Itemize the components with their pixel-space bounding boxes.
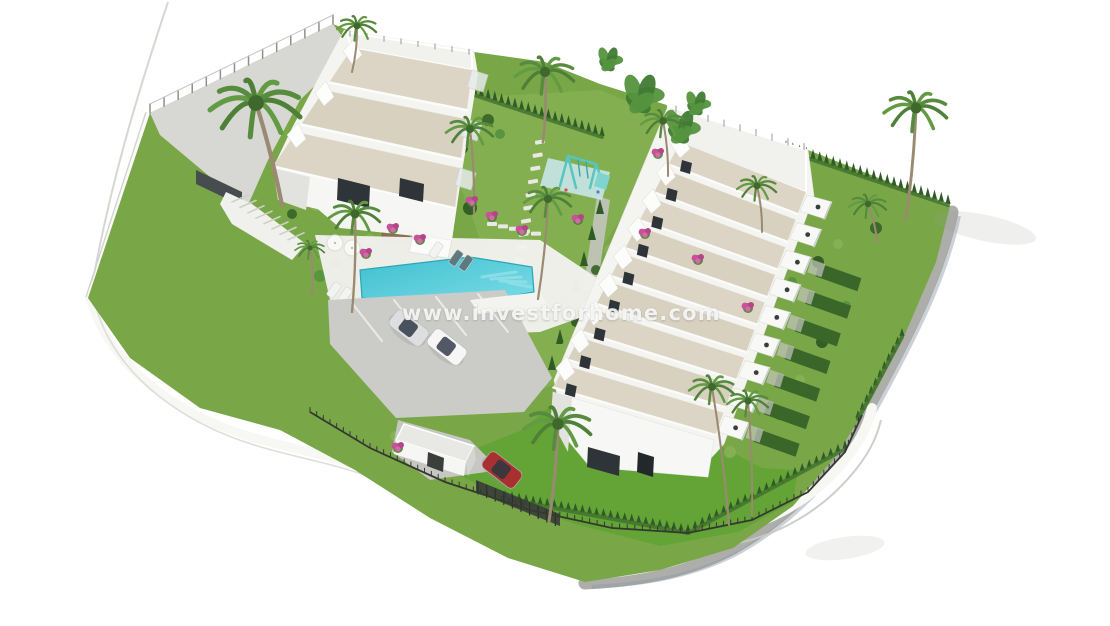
palm-crown (659, 117, 666, 124)
stepping-stone (498, 224, 508, 228)
pool-steps (491, 277, 521, 279)
toy (596, 190, 599, 193)
palm-crown (466, 125, 474, 133)
site-render (0, 0, 1110, 626)
flowers (417, 238, 422, 243)
stepping-stone (487, 222, 497, 226)
parasol-pole (334, 242, 336, 244)
terrace-furniture (795, 260, 800, 265)
terrace-furniture (733, 425, 738, 430)
terrace-furniture (764, 343, 769, 348)
garden-bush (833, 239, 843, 249)
garden-bush (724, 446, 736, 458)
palm-crown (911, 103, 922, 114)
leafy-tree (596, 46, 623, 74)
palm-shadow (804, 532, 886, 565)
palm-crown (754, 183, 761, 190)
palm-crown (552, 418, 564, 430)
stepping-stone (531, 232, 541, 236)
garden-bush (287, 209, 297, 219)
flowers (575, 218, 580, 223)
flowers (469, 200, 474, 205)
toy (564, 188, 567, 191)
terrace-furniture (785, 287, 790, 292)
palm-crown (354, 23, 361, 30)
palm-crown (248, 95, 264, 111)
pool-steps (500, 281, 526, 282)
flowers (395, 446, 400, 451)
palm-crown (544, 195, 552, 203)
palm-crown (744, 397, 751, 404)
palm-crown (351, 210, 360, 219)
terrace-furniture (774, 315, 779, 320)
flowers (489, 215, 494, 220)
terrace-furniture (816, 205, 821, 210)
flowers (745, 306, 750, 311)
render-canvas: www.investforhome.com (0, 0, 1110, 626)
flowers (655, 152, 660, 157)
terrace-furniture (754, 370, 759, 375)
terrace-furniture (805, 232, 810, 237)
flowers (642, 232, 647, 237)
palm-crown (307, 245, 312, 250)
palm-crown (865, 201, 871, 207)
flowers (519, 229, 524, 234)
flowers (363, 252, 368, 257)
flowers (390, 227, 395, 232)
garden-bush (495, 129, 505, 139)
flowers (695, 258, 700, 263)
parasol-pole (351, 247, 353, 249)
palm-crown (708, 383, 716, 391)
palm-crown (540, 67, 550, 77)
